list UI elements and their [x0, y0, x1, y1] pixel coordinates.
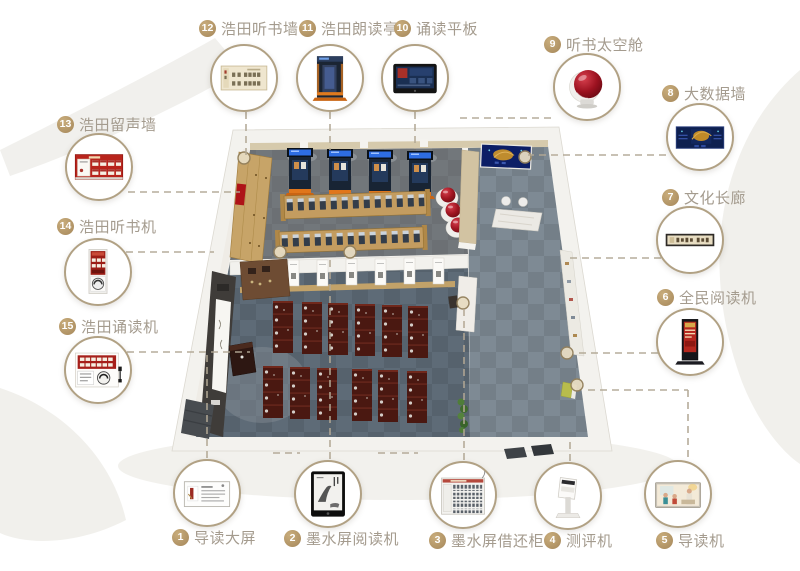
- callout-9-badge: 9: [544, 36, 561, 53]
- callout-4-badge: 4: [544, 532, 561, 549]
- callout-10-label: 10 诵读平板: [394, 19, 478, 37]
- callout-14-text: 浩田听书机: [79, 216, 157, 237]
- callout-8-text: 大数据墙: [684, 83, 746, 104]
- callout-1-text: 导读大屏: [194, 527, 256, 548]
- callout-11-text: 浩田朗读亭: [321, 18, 399, 39]
- callout-2-label: 2 墨水屏阅读机: [284, 529, 399, 547]
- callout-6-badge: 6: [657, 289, 674, 306]
- ink-cabinet-image: [437, 469, 489, 521]
- callout-5-badge: 5: [656, 532, 673, 549]
- callout-5-label: 5 导读机: [656, 531, 725, 549]
- callout-3-badge: 3: [429, 532, 446, 549]
- callout-14-badge: 14: [57, 218, 74, 235]
- callout-1-label: 1 导读大屏: [172, 528, 256, 546]
- callout-12-badge: 12: [199, 20, 216, 37]
- callout-6-circle: [656, 308, 724, 376]
- callout-13-circle: [65, 133, 133, 201]
- callout-1-badge: 1: [172, 529, 189, 546]
- callout-5-text: 导读机: [678, 530, 725, 551]
- reading-space-diagram: 12 浩田听书墙 11 浩田朗读亭 10 诵读平板 9 听书太空舱 8 大数据墙…: [0, 0, 800, 571]
- callout-10-badge: 10: [394, 20, 411, 37]
- culture-corridor-image: [664, 214, 716, 266]
- listening-machine-image: [72, 246, 124, 298]
- callout-3-circle: [429, 461, 497, 529]
- callout-6-text: 全民阅读机: [679, 287, 757, 308]
- ink-reader-image: [302, 468, 354, 520]
- callout-13-text: 浩田留声墙: [79, 114, 157, 135]
- callout-3-label: 3 墨水屏借还柜: [429, 531, 544, 549]
- data-wall-image: [674, 111, 726, 163]
- callout-2-circle: [294, 460, 362, 528]
- recite-tablet-image: [390, 53, 440, 103]
- floor-mat: [181, 399, 214, 439]
- reading-kiosk-image: [664, 316, 716, 368]
- callout-9-circle: [553, 53, 621, 121]
- callout-12-text: 浩田听书墙: [221, 18, 299, 39]
- assessment-kiosk-image: [543, 471, 593, 521]
- callout-13-badge: 13: [57, 116, 74, 133]
- callout-8-badge: 8: [662, 85, 679, 102]
- callout-1-circle: [173, 459, 241, 527]
- guide-screen-image: [181, 467, 233, 519]
- callout-11-badge: 11: [299, 20, 316, 37]
- callout-9-label: 9 听书太空舱: [544, 35, 644, 53]
- callout-15-text: 浩田诵读机: [81, 316, 159, 337]
- callout-8-label: 8 大数据墙: [662, 84, 746, 102]
- callout-5-circle: [644, 460, 712, 528]
- callout-4-text: 测评机: [566, 530, 613, 551]
- callout-11-circle: [296, 44, 364, 112]
- lecture-podium: [229, 342, 256, 376]
- callout-7-text: 文化长廊: [684, 187, 746, 208]
- callout-7-badge: 7: [662, 189, 679, 206]
- callout-3-text: 墨水屏借还柜: [451, 530, 544, 551]
- callout-2-badge: 2: [284, 530, 301, 547]
- callout-7-label: 7 文化长廊: [662, 188, 746, 206]
- callout-12-circle: [210, 44, 278, 112]
- callout-14-circle: [64, 238, 132, 306]
- callout-15-label: 15 浩田诵读机: [59, 317, 159, 335]
- space-pod-image: [561, 61, 613, 113]
- callout-4-label: 4 测评机: [544, 531, 613, 549]
- callout-12-label: 12 浩田听书墙: [199, 19, 299, 37]
- callout-9-text: 听书太空舱: [566, 34, 644, 55]
- callout-15-circle: [64, 336, 132, 404]
- recite-machine-image: [72, 344, 124, 396]
- callout-2-text: 墨水屏阅读机: [306, 528, 399, 549]
- reading-booth-image: [305, 53, 355, 103]
- voice-wall-image: [73, 141, 125, 193]
- callout-8-circle: [666, 103, 734, 171]
- callout-14-label: 14 浩田听书机: [57, 217, 157, 235]
- callout-7-circle: [656, 206, 724, 274]
- callout-6-label: 6 全民阅读机: [657, 288, 757, 306]
- callout-10-text: 诵读平板: [416, 18, 478, 39]
- callout-11-label: 11 浩田朗读亭: [299, 19, 399, 37]
- floorplan: [172, 127, 612, 459]
- callout-4-circle: [534, 462, 602, 530]
- callout-13-label: 13 浩田留声墙: [57, 115, 157, 133]
- callout-15-badge: 15: [59, 318, 76, 335]
- listening-wall-image: [219, 53, 269, 103]
- callout-10-circle: [381, 44, 449, 112]
- guide-machine-image: [652, 468, 704, 520]
